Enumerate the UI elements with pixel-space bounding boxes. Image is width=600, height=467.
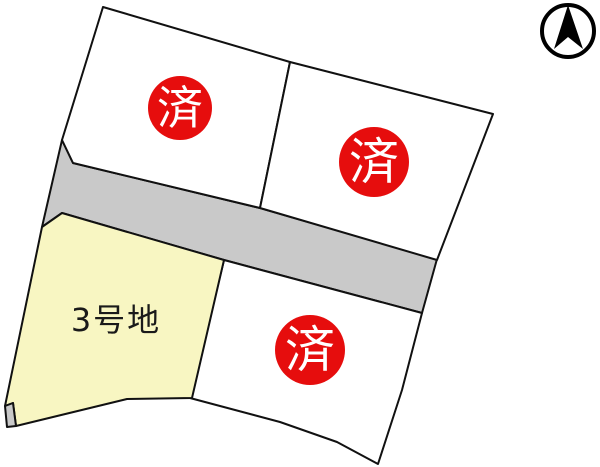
- plot-3-label: 3号地: [71, 301, 161, 339]
- north-arrow-icon: [542, 5, 594, 57]
- lot-map-page: 3号地済済済: [0, 0, 600, 467]
- sold-stamp-text: 済: [285, 321, 335, 379]
- plot-bottom-right-sold-badge: 済: [275, 315, 345, 385]
- road-corner-piece: [5, 403, 16, 427]
- sold-stamp-text: 済: [157, 81, 203, 135]
- plot-top-right-sold-badge: 済: [339, 127, 409, 197]
- sold-stamp-text: 済: [349, 133, 399, 191]
- north-arrow-pointer: [554, 5, 583, 49]
- lot-map-diagram: 3号地済済済: [0, 0, 600, 467]
- plot-top-left-sold-badge: 済: [148, 76, 212, 140]
